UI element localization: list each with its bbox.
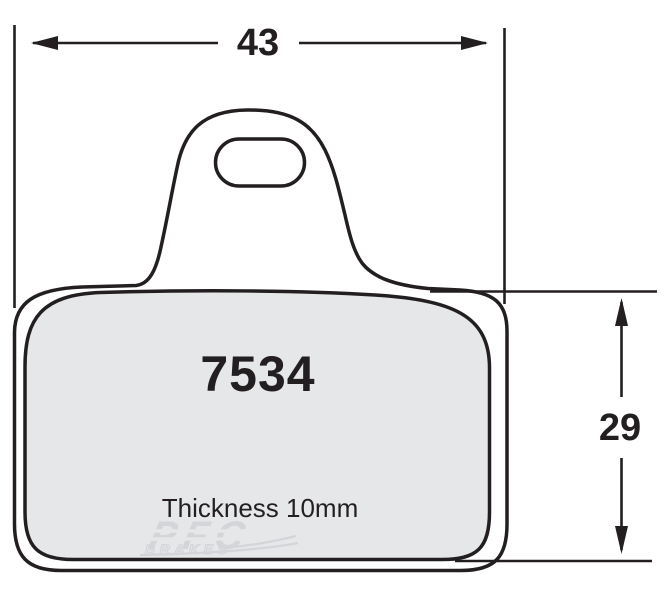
thickness-label: Thickness 10mm xyxy=(162,493,359,523)
drawing-svg: PFC BRAKES 7534 Thickness 10mm 43 xyxy=(0,0,669,596)
brake-pad-dimension-drawing: PFC BRAKES 7534 Thickness 10mm 43 xyxy=(0,0,669,596)
arrow-up-icon xyxy=(615,298,628,326)
arrow-down-icon xyxy=(615,526,628,554)
height-dimension-label: 29 xyxy=(599,407,641,449)
arrow-right-icon xyxy=(461,36,488,50)
width-dimension-label: 43 xyxy=(237,22,279,64)
arrow-left-icon xyxy=(31,36,58,50)
part-number-label: 7534 xyxy=(200,346,315,402)
tab-slot-cutout xyxy=(216,139,305,186)
